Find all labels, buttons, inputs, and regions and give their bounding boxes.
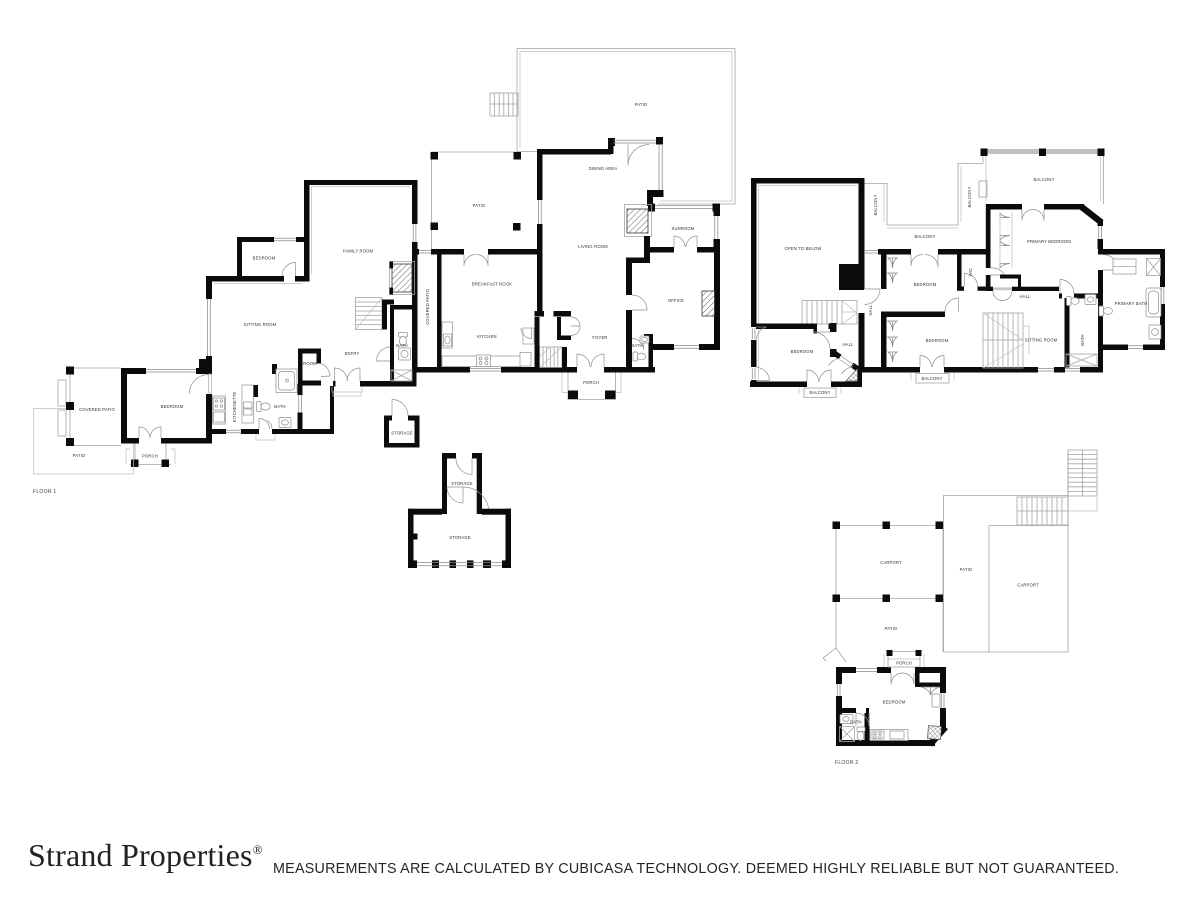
svg-text:HALL: HALL [1019, 294, 1031, 299]
svg-text:BALCONY: BALCONY [1033, 177, 1054, 182]
svg-text:BREAKFAST NOOK: BREAKFAST NOOK [472, 282, 512, 287]
svg-text:LIVING ROOM: LIVING ROOM [578, 244, 608, 249]
svg-text:COVERED PATIO: COVERED PATIO [79, 407, 115, 412]
svg-text:BEDROOM: BEDROOM [914, 282, 937, 287]
svg-text:PORCH: PORCH [142, 454, 158, 459]
svg-text:MEASUREMENTS ARE CALCULATED BY: MEASUREMENTS ARE CALCULATED BY CUBICASA … [273, 861, 1119, 877]
svg-text:BEDROOM: BEDROOM [253, 256, 276, 261]
svg-text:COVERED PATIO: COVERED PATIO [425, 289, 430, 325]
svg-text:WIC: WIC [968, 268, 973, 277]
svg-text:BATH: BATH [631, 343, 642, 348]
svg-text:BATH: BATH [274, 404, 285, 409]
svg-text:ENTRY: ENTRY [345, 351, 360, 356]
svg-text:PATIO: PATIO [473, 203, 486, 208]
svg-text:STORAGE: STORAGE [449, 535, 471, 540]
svg-text:BALCONY: BALCONY [809, 390, 830, 395]
svg-text:ROOM: ROOM [303, 361, 317, 366]
svg-text:STORAGE: STORAGE [391, 431, 413, 436]
svg-text:KITCHEN: KITCHEN [477, 334, 496, 339]
svg-text:FLOOR 1: FLOOR 1 [33, 489, 57, 495]
svg-text:FLOOR 2: FLOOR 2 [835, 760, 859, 766]
svg-text:BEDROOM: BEDROOM [883, 700, 906, 705]
svg-text:STORAGE: STORAGE [451, 481, 473, 486]
svg-text:HALL: HALL [868, 304, 873, 316]
svg-text:OPEN TO BELOW: OPEN TO BELOW [785, 246, 822, 251]
svg-text:BALCONY: BALCONY [873, 194, 878, 215]
svg-text:SITTING ROOM: SITTING ROOM [1025, 338, 1058, 343]
svg-text:BALCONY: BALCONY [967, 186, 972, 207]
svg-text:CARPORT: CARPORT [880, 560, 902, 565]
svg-text:PATIO: PATIO [635, 102, 648, 107]
svg-text:SITTING ROOM: SITTING ROOM [244, 322, 277, 327]
svg-text:BEDROOM: BEDROOM [161, 404, 184, 409]
svg-text:Strand Properties®: Strand Properties® [28, 837, 263, 873]
svg-text:PORCH: PORCH [896, 661, 912, 666]
svg-text:PRIMARY BATH: PRIMARY BATH [1115, 301, 1148, 306]
svg-text:PATIO: PATIO [885, 626, 898, 631]
svg-text:PATIO: PATIO [73, 453, 86, 458]
svg-text:HALL: HALL [842, 342, 854, 347]
svg-text:FOYER: FOYER [592, 335, 607, 340]
svg-text:PORCH: PORCH [583, 380, 599, 385]
svg-text:SUNROOM: SUNROOM [672, 226, 695, 231]
svg-text:PRIMARY BEDROOM: PRIMARY BEDROOM [1027, 239, 1071, 244]
svg-text:BALCONY: BALCONY [921, 376, 942, 381]
svg-text:BATH: BATH [850, 720, 861, 725]
svg-text:OFFICE: OFFICE [668, 298, 684, 303]
svg-text:CARPORT: CARPORT [1017, 583, 1039, 588]
svg-text:BATH: BATH [396, 343, 407, 348]
svg-text:KITCHENETTE: KITCHENETTE [232, 392, 237, 423]
svg-text:FAMILY ROOM: FAMILY ROOM [343, 249, 374, 254]
svg-text:PATIO: PATIO [960, 567, 973, 572]
svg-text:BEDROOM: BEDROOM [926, 338, 949, 343]
svg-text:BATH: BATH [1080, 334, 1085, 345]
svg-text:DINING AREA: DINING AREA [589, 166, 618, 171]
svg-text:BALCONY: BALCONY [914, 234, 935, 239]
svg-text:BEDROOM: BEDROOM [791, 349, 814, 354]
